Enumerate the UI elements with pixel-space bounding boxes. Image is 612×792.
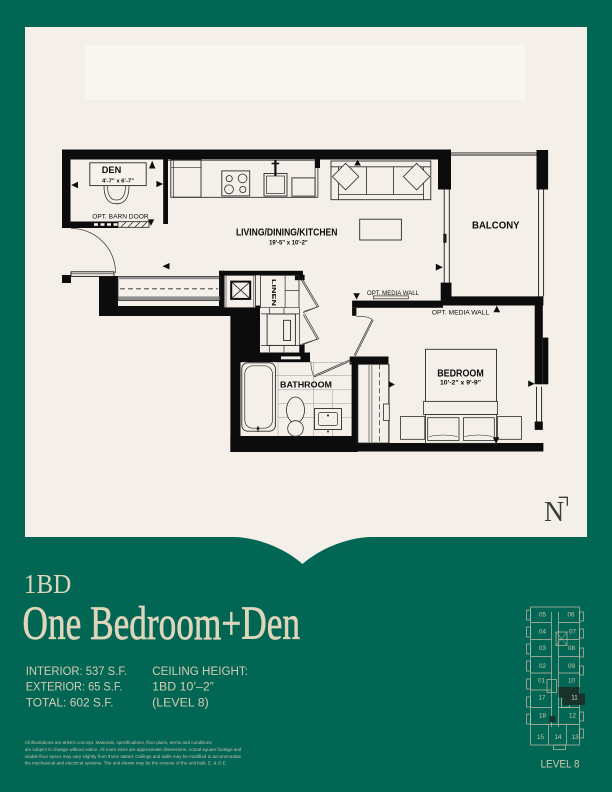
svg-text:INTERIOR: 537 S.F.: INTERIOR: 537 S.F. [26, 664, 127, 678]
svg-text:06: 06 [567, 612, 575, 619]
svg-text:17: 17 [538, 694, 546, 701]
svg-text:08: 08 [568, 645, 576, 652]
svg-text:All illustrations are artist's: All illustrations are artist's concept. … [25, 740, 213, 745]
svg-text:LINEN: LINEN [270, 279, 276, 306]
svg-text:are subject to change without: are subject to change without notice. Al… [25, 747, 242, 752]
svg-text:13: 13 [571, 734, 579, 741]
svg-text:OPT. BARN DOOR: OPT. BARN DOOR [92, 214, 149, 221]
svg-text:N: N [544, 497, 564, 528]
svg-text:OPT. MEDIA WALL: OPT. MEDIA WALL [432, 310, 490, 317]
svg-text:4'-7" x 6'-7": 4'-7" x 6'-7" [102, 179, 134, 185]
svg-text:(LEVEL 8): (LEVEL 8) [152, 695, 209, 709]
svg-text:usable floor space may vary sl: usable floor space may vary slightly fro… [25, 754, 242, 759]
svg-text:the mechanical and electrical: the mechanical and electrical systems. T… [25, 761, 227, 766]
svg-text:1BD: 1BD [24, 569, 72, 599]
svg-text:19'-5" x 10'-2": 19'-5" x 10'-2" [269, 241, 308, 247]
svg-text:10: 10 [568, 678, 576, 685]
svg-text:11: 11 [571, 694, 578, 701]
svg-text:TOTAL: 602 S.F.: TOTAL: 602 S.F. [26, 695, 114, 709]
svg-text:CEILING HEIGHT:: CEILING HEIGHT: [152, 664, 248, 678]
svg-text:07: 07 [569, 628, 577, 635]
svg-text:02: 02 [539, 663, 547, 670]
svg-text:DEN: DEN [102, 165, 122, 175]
svg-text:18: 18 [539, 712, 547, 719]
svg-text:BATHROOM: BATHROOM [280, 379, 332, 389]
svg-text:15: 15 [537, 734, 545, 741]
svg-text:One Bedroom+Den: One Bedroom+Den [23, 597, 301, 650]
svg-text:14: 14 [554, 734, 562, 741]
svg-text:03: 03 [539, 645, 547, 652]
svg-text:LIVING/DINING/KITCHEN: LIVING/DINING/KITCHEN [236, 226, 338, 238]
svg-text:01: 01 [538, 678, 546, 685]
svg-text:BALCONY: BALCONY [472, 220, 520, 231]
svg-text:09: 09 [568, 663, 576, 670]
svg-text:OPT. MEDIA WALL: OPT. MEDIA WALL [367, 290, 419, 297]
svg-text:LEVEL 8: LEVEL 8 [541, 759, 580, 771]
svg-text:12: 12 [569, 712, 577, 719]
svg-text:04: 04 [539, 628, 547, 635]
svg-text:05: 05 [539, 612, 547, 619]
svg-text:1BD 10’–2”: 1BD 10’–2” [152, 680, 214, 694]
svg-text:BEDROOM: BEDROOM [437, 369, 484, 380]
svg-text:10'-2" x 9'-9": 10'-2" x 9'-9" [440, 380, 481, 386]
svg-text:EXTERIOR: 65 S.F.: EXTERIOR: 65 S.F. [26, 680, 123, 694]
